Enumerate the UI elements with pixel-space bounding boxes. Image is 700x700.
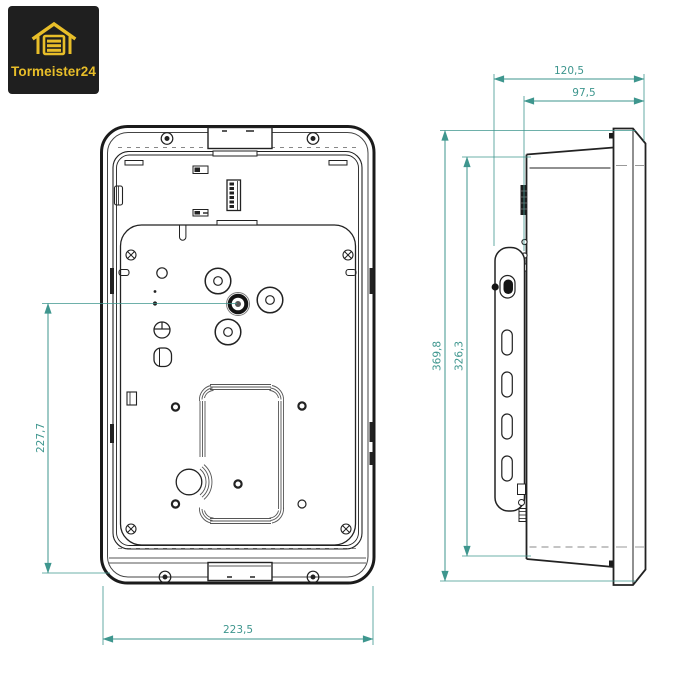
drive-shaft (227, 293, 250, 316)
mounting-bracket (492, 248, 526, 522)
dimension-label-height-housing: 326,3 (454, 341, 466, 371)
dimension-label-depth-housing: 97,5 (572, 87, 595, 99)
dimension-width-front: 223,5 (103, 586, 373, 645)
terminal-connector (227, 180, 241, 211)
side-front-cover (609, 129, 646, 586)
technical-drawing: 120,5 97,5 369,8 326,3 227,7 (0, 0, 700, 700)
tormeister24-logo: Tormeister24 (8, 6, 99, 94)
clip (193, 166, 208, 174)
dimension-depth-total: 120,5 (494, 65, 644, 246)
top-tab (208, 128, 272, 149)
brand-name: Tormeister24 (11, 64, 96, 79)
clip (193, 210, 208, 217)
dimension-label-height-total: 369,8 (432, 341, 444, 371)
dimension-height-center: 227,7 (35, 304, 237, 574)
gasket-pattern (199, 385, 283, 524)
side-view (492, 129, 646, 586)
side-housing (521, 148, 614, 568)
bottom-tab (208, 563, 272, 581)
mounting-plate (121, 225, 356, 545)
cable-hole (176, 469, 202, 495)
front-view (102, 127, 375, 584)
case-screws (159, 133, 319, 583)
dimension-label-width-front: 223,5 (223, 624, 253, 636)
dimension-label-height-center: 227,7 (35, 423, 47, 453)
garage-door-icon (31, 21, 77, 61)
dimension-depth-housing: 97,5 (524, 87, 644, 251)
cylinder-part (154, 348, 172, 367)
screw-head (154, 322, 170, 338)
dimension-label-depth-total: 120,5 (554, 65, 584, 77)
